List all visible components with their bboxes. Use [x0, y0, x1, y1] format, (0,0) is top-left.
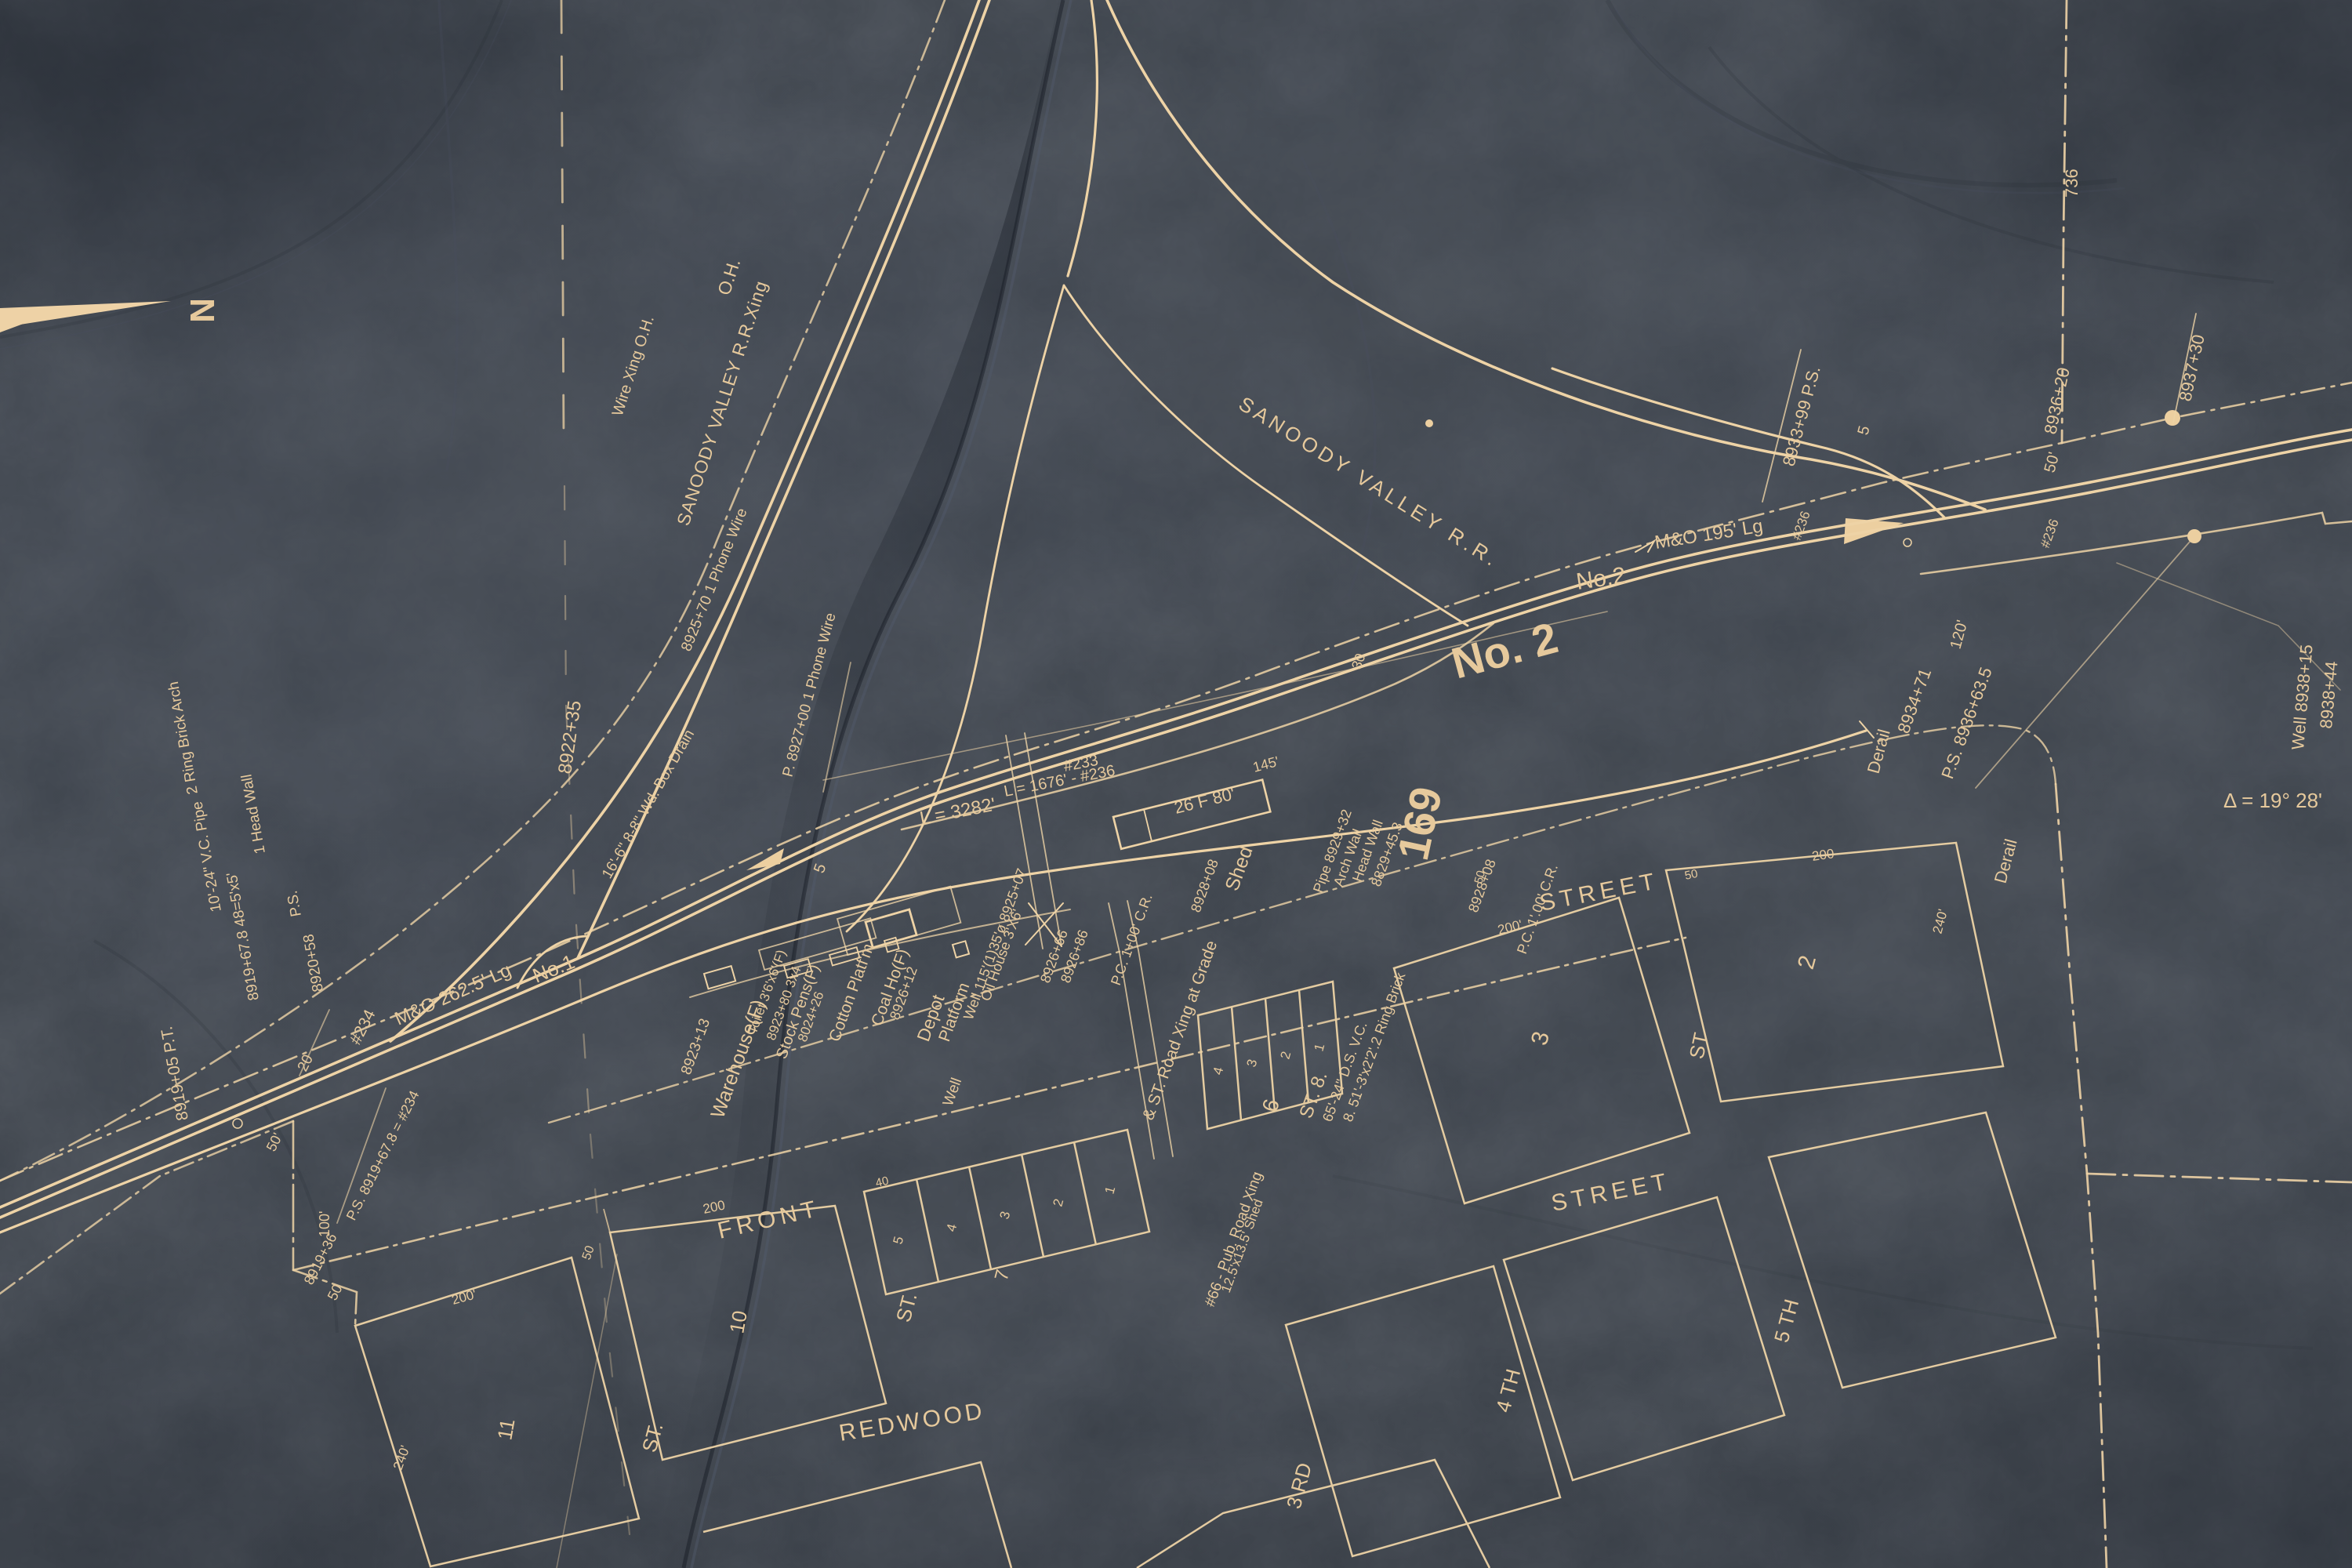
svg-text:11: 11: [492, 1417, 519, 1442]
svg-text:10: 10: [724, 1308, 752, 1335]
svg-text:N: N: [183, 298, 221, 323]
svg-text:Δ = 19° 28': Δ = 19° 28': [2223, 789, 2322, 812]
svg-text:50: 50: [1683, 867, 1699, 883]
svg-text:200: 200: [1811, 846, 1835, 864]
svg-text:736: 736: [2062, 169, 2082, 198]
svg-text:100': 100': [317, 1211, 332, 1237]
